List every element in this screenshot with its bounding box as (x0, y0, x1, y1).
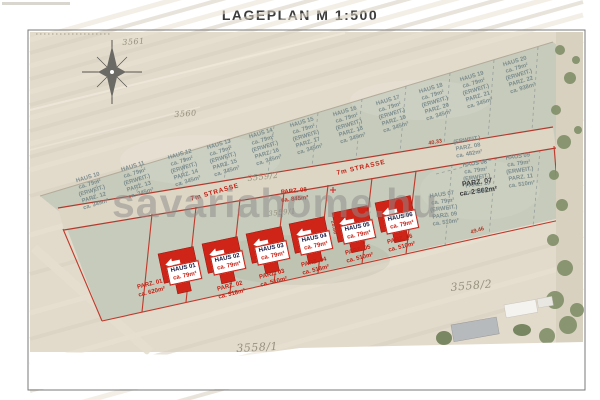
planned-haus-19: HAUS 19ca. 79m²(ERWEIT.)PARZ. 21ca. 345m… (458, 70, 494, 112)
parz-1-label: PARZ. 01ca. 620m² (136, 278, 166, 300)
parcel-number-3560: 3560 (174, 108, 197, 119)
haus-4-label: HAUS 04ca. 79m² (297, 230, 334, 256)
planned-haus-13: HAUS 13ca. 79m²(ERWEIT.)PARZ. 15ca. 345m… (205, 138, 241, 180)
measurement-label: 49.46 (470, 226, 485, 236)
parz-5-label: PARZ. 05ca. 510m² (344, 244, 374, 266)
planned-haus-16: HAUS 16ca. 79m²(ERWEIT.)PARZ. 18ca. 345m… (331, 105, 367, 147)
haus-2-label: HAUS 02ca. 79m² (210, 250, 247, 276)
measurement-label: 40.33 (428, 138, 443, 147)
planned-haus-14: HAUS 14ca. 79m²(ERWEIT.)PARZ. 16ca. 345m… (247, 127, 283, 169)
parcel-number-3558-1: 3558/1 (236, 340, 278, 355)
planned-haus-18: HAUS 18ca. 79m²(ERWEIT.)PARZ. 20ca. 345m… (417, 82, 453, 124)
parz-4-label: PARZ. 04ca. 518m² (300, 256, 330, 278)
parcel-number-3561: 3561 (122, 36, 145, 47)
planned-haus-08: HAUS 08ca. 79m²(ERWEIT.)PARZ. 10ca. 510m… (461, 159, 493, 198)
planned-haus-09: HAUS 09ca. 79m²(ERWEIT.)PARZ. 11ca. 510m… (504, 152, 536, 191)
watermark: savariahome.hu (112, 180, 438, 227)
planned-parz-08-strip: (ERWEIT.)PARZ. 08ca. 482m² (453, 135, 484, 161)
street-label: 7m STRASSE (336, 159, 386, 177)
parcel-number-3558-2: 3558/2 (450, 277, 493, 294)
planned-haus-20: HAUS 20ca. 79m²(ERWEIT.)PARZ. 22ca. 938m… (501, 55, 537, 97)
haus-3-label: HAUS 03ca. 79m² (254, 240, 291, 266)
site-plan-page: LAGEPLAN M 1:500 (0, 0, 600, 400)
parz-3-label: PARZ. 03ca. 510m² (258, 268, 288, 290)
planned-haus-17: HAUS 17ca. 79m²(ERWEIT.)PARZ. 19ca. 345m… (374, 94, 410, 136)
parz-6-label: PARZ. 06ca. 510m² (386, 233, 416, 255)
planned-haus-15: HAUS 15ca. 79m²(ERWEIT.)PARZ. 17ca. 345m… (288, 116, 324, 158)
haus-1-label: HAUS 01ca. 79m² (166, 260, 203, 286)
planned-haus-10: HAUS 10ca. 79m²(ERWEIT.)PARZ. 12ca. 345m… (74, 171, 110, 213)
parz-2-label: PARZ. 02ca. 518m² (216, 280, 246, 302)
